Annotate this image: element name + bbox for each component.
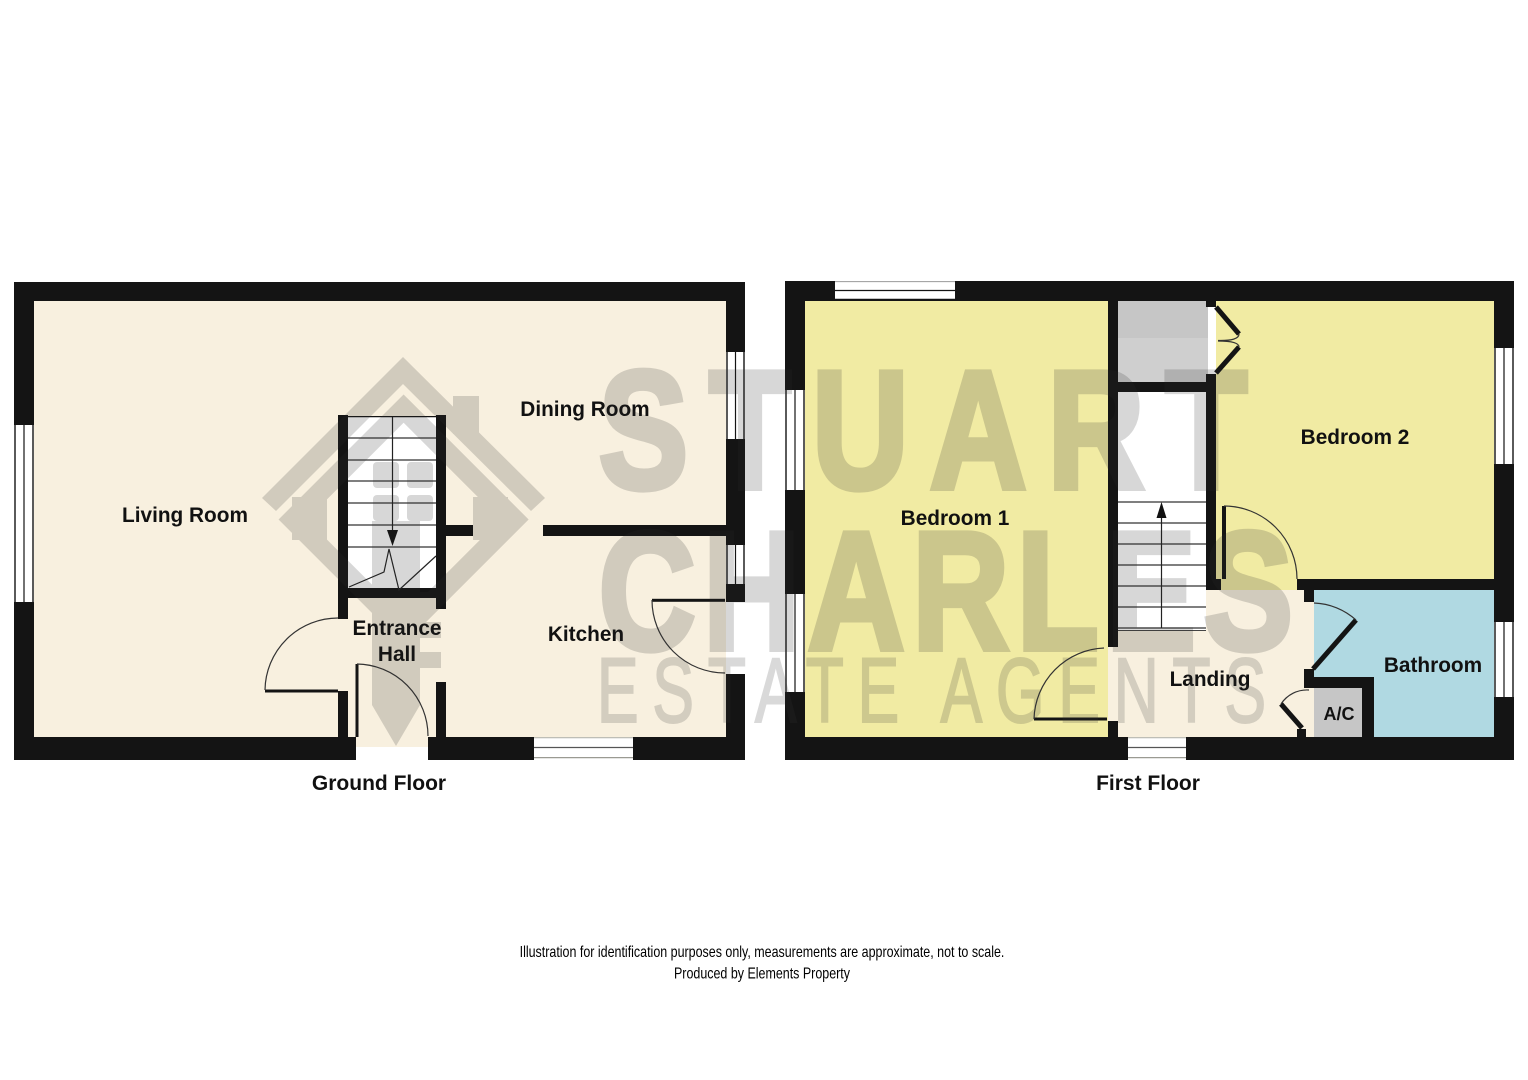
svg-text:Living Room: Living Room	[122, 504, 248, 527]
svg-text:First Floor: First Floor	[1096, 772, 1200, 795]
svg-text:Bedroom 2: Bedroom 2	[1301, 426, 1410, 449]
svg-text:Illustration for identificatio: Illustration for identification purposes…	[520, 944, 1005, 962]
svg-text:A/C: A/C	[1324, 704, 1355, 724]
svg-text:Bathroom: Bathroom	[1384, 654, 1482, 677]
svg-text:Produced by Elements Property: Produced by Elements Property	[674, 965, 851, 983]
svg-text:Ground Floor: Ground Floor	[312, 772, 446, 795]
